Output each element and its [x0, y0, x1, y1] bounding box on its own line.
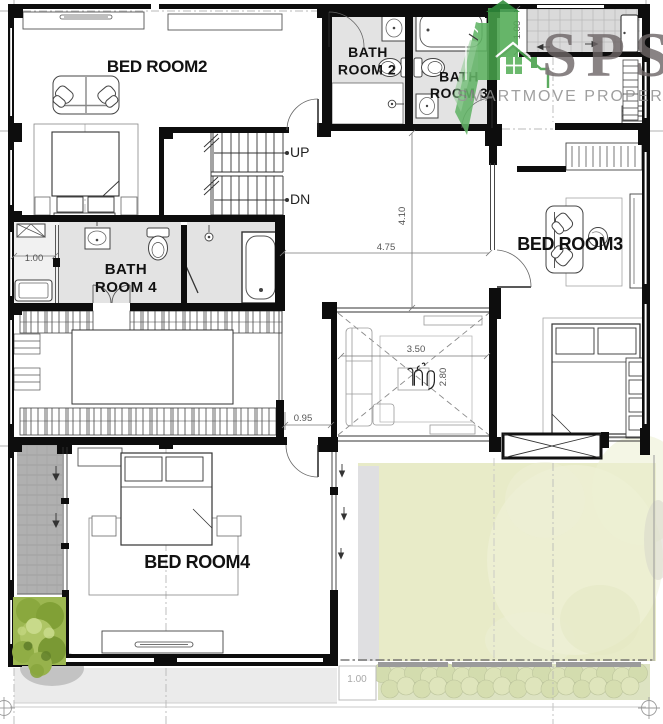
svg-text:1.00: 1.00	[25, 253, 44, 264]
svg-text:BED ROOM2: BED ROOM2	[107, 57, 207, 76]
svg-text:2.80: 2.80	[438, 368, 449, 387]
svg-text:UP: UP	[290, 144, 309, 160]
svg-text:SPS: SPS	[542, 20, 663, 90]
svg-text:4.10: 4.10	[397, 207, 408, 226]
svg-text:3.50: 3.50	[407, 344, 426, 355]
svg-text:BATH: BATH	[105, 261, 148, 278]
svg-text:SMARTMOVE PROPERTY: SMARTMOVE PROPERTY	[457, 88, 663, 105]
svg-text:DN: DN	[290, 191, 310, 207]
svg-text:BED ROOM4: BED ROOM4	[144, 552, 250, 572]
svg-text:4.75: 4.75	[377, 242, 396, 253]
svg-text:BATH: BATH	[348, 44, 388, 60]
svg-text:1.00: 1.00	[347, 674, 367, 685]
svg-text:BED ROOM3: BED ROOM3	[517, 234, 623, 254]
svg-text:ROOM 2: ROOM 2	[338, 62, 396, 78]
svg-text:ROOM 4: ROOM 4	[95, 279, 157, 296]
svg-text:0.95: 0.95	[294, 413, 313, 424]
